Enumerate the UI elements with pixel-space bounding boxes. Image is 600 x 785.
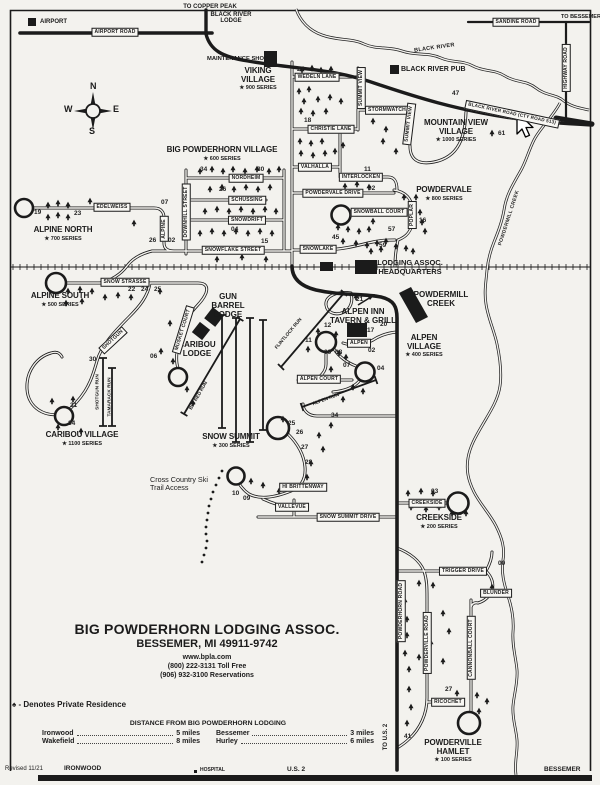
village-big-powderhorn: BIG POWDERHORN VILLAGE ★ 600 SERIES — [160, 146, 284, 162]
village-powdervale: POWDERVALE ★ 800 SERIES — [404, 186, 484, 202]
lot-number: 18 — [304, 117, 311, 124]
dotted-leader — [241, 743, 347, 744]
legend-private-residence: ♠ - Denotes Private Residence — [12, 701, 126, 710]
compass-icon — [74, 92, 112, 130]
lot-number: 07 — [161, 199, 168, 206]
road-snow-summit-drive: SNOW SUMMIT DRIVE — [317, 513, 380, 522]
lot-number: 02 — [368, 347, 375, 354]
village-snow-summit: SNOW SUMMIT ★ 300 SERIES — [185, 433, 277, 449]
distance-place: Hurley — [216, 738, 238, 745]
lot-number: 11 — [305, 337, 312, 344]
village-caribou: CARIBOU VILLAGE ★ 1100 SERIES — [36, 431, 128, 447]
hospital-label: HOSPITAL — [200, 768, 225, 773]
compass-s: S — [89, 127, 95, 137]
tree-icon: ♠ — [12, 700, 16, 709]
lot-number: 19 — [34, 209, 41, 216]
distance-row: Hurley 6 miles — [216, 738, 374, 745]
village-creekside: CREEKSIDE ★ 200 SERIES — [404, 514, 474, 530]
road-snowlake: SNOWLAKE — [300, 245, 337, 254]
black-river-lodge-label: BLACK RIVER LODGE — [207, 12, 255, 25]
hospital-icon — [194, 770, 197, 773]
road-sandine: SANDINE ROAD — [492, 18, 539, 27]
village-alpine-south: ALPINE SOUTH ★ 500 SERIES — [20, 292, 100, 308]
legend-text: - Denotes Private Residence — [18, 700, 126, 709]
distance-miles: 5 miles — [176, 730, 200, 737]
lot-number: 22 — [128, 286, 135, 293]
lot-number: 34 — [68, 420, 75, 427]
distance-place: Wakefield — [42, 738, 74, 745]
xc-trail-access-label: Cross Country Ski Trail Access — [150, 476, 214, 492]
road-vallevue: VALLEVUE — [275, 503, 309, 512]
lot-number: 12 — [324, 322, 331, 329]
lot-number: 27 — [445, 686, 452, 693]
road-powderhorn-road: POWDERHORN ROAD — [397, 580, 406, 642]
village-mountain-view: MOUNTAIN VIEW VILLAGE ★ 1000 SERIES — [420, 119, 492, 143]
distance-row: Bessemer 3 miles — [216, 730, 374, 737]
distance-row: Wakefield 8 miles — [42, 738, 200, 745]
to-copper-peak-label: TO COPPER PEAK — [183, 4, 237, 10]
compass-w: W — [64, 105, 73, 115]
run-shotgun: SHOTGUN RUN — [96, 374, 101, 410]
lot-number: 10 — [232, 490, 239, 497]
org-title: BIG POWDERHORN LODGING ASSOC. — [74, 622, 339, 637]
lot-number: 02 — [368, 185, 375, 192]
railroad — [11, 264, 590, 270]
black-river-pub-label: BLACK RIVER PUB — [401, 66, 466, 73]
road-snowball-court: SNOWBALL COURT — [351, 208, 408, 217]
lot-number: 34 — [200, 166, 207, 173]
run-tamarack: TAMARACK RUN — [108, 377, 113, 416]
lot-number: 00 — [498, 560, 505, 567]
lot-number: 25 — [288, 420, 295, 427]
bessemer-label: BESSEMER — [544, 766, 580, 773]
lot-number: 16 — [419, 217, 426, 224]
lot-number: 09 — [243, 495, 250, 502]
us2-label: U.S. 2 — [287, 766, 305, 773]
org-address: BESSEMER, MI 49911-9742 — [136, 639, 277, 651]
lot-number: 30 — [257, 166, 264, 173]
distance-table: Ironwood 5 miles Bessemer 3 miles Wakefi… — [42, 730, 374, 745]
road-poplar: POPLAR — [408, 201, 417, 229]
road-interlocken: INTERLOCKEN — [339, 173, 383, 182]
lot-number: 23 — [74, 210, 81, 217]
lot-number: 04 — [377, 365, 384, 372]
distance-place: Bessemer — [216, 730, 249, 737]
road-blunder: BLUNDER — [480, 589, 512, 598]
village-viking: VIKING VILLAGE ★ 900 SERIES — [232, 67, 284, 91]
org-phone-reservations: (906) 932-3100 Reservations — [160, 672, 254, 680]
org-phone-tollfree: (800) 222-3131 Toll Free — [168, 663, 246, 671]
powdermill-creek-poi-label: POWDERMILL CREEK — [412, 290, 470, 308]
lot-number: 27 — [301, 444, 308, 451]
distance-table-title: DISTANCE FROM BIG POWDERHORN LODGING — [130, 720, 286, 727]
lot-number: 09 — [324, 349, 331, 356]
lot-number: 15 — [261, 238, 268, 245]
lot-number: 20 — [380, 321, 387, 328]
org-website: www.bpla.com — [183, 654, 232, 662]
lot-number: 06 — [150, 353, 157, 360]
road-summit-view-a: SUMMIT VIEW — [357, 67, 366, 109]
road-alpen: ALPEN — [347, 339, 371, 348]
road-schussing: SCHUSSING — [228, 196, 266, 205]
lot-number: 41 — [404, 733, 411, 740]
road-airport-road: AIRPORT ROAD — [91, 28, 138, 37]
lot-number: 03 — [431, 488, 438, 495]
to-us2-label: TO U.S. 2 — [383, 724, 389, 751]
dotted-leader — [252, 735, 347, 736]
road-trigger-drive: TRIGGER DRIVE — [439, 567, 487, 576]
road-stormwatch: STORMWATCH — [365, 106, 409, 115]
black-river — [296, 9, 589, 110]
dotted-leader — [77, 743, 173, 744]
road-ricochet: RICOCHET — [431, 698, 465, 707]
road-alpine: ALPINE — [160, 216, 169, 242]
lot-number: 02 — [168, 237, 175, 244]
lot-number: 26 — [149, 237, 156, 244]
distance-miles: 8 miles — [176, 738, 200, 745]
highways — [20, 10, 592, 770]
lot-number: 24 — [141, 286, 148, 293]
compass-n: N — [90, 82, 97, 92]
culdesacs — [15, 199, 480, 734]
revised-date: Revised 11/21 — [5, 766, 43, 772]
lot-number: 04 — [231, 226, 238, 233]
lot-number: 25 — [154, 286, 161, 293]
lot-number: 57 — [388, 226, 395, 233]
lot-number: 31 — [70, 402, 77, 409]
lodging-hq-label: LODGING ASSOC. HEADQUARTERS — [368, 258, 452, 276]
lot-number: 59 — [379, 242, 386, 249]
lot-number: 47 — [452, 90, 459, 97]
road-snowdrift: SNOWDRIFT — [228, 216, 266, 225]
lot-number: 26 — [219, 186, 226, 193]
lot-number: 61 — [498, 130, 505, 137]
road-downhill-street: DOWNHILL STREET — [182, 184, 191, 241]
lot-number: 27 — [297, 66, 304, 73]
village-powderville: POWDERVILLE HAMLET ★ 100 SERIES — [421, 739, 485, 763]
lot-number: 11 — [364, 166, 371, 173]
road-cannonball-court: CANNONBALL COURT — [467, 616, 476, 680]
road-nordheim: NORDHEIM — [229, 174, 264, 183]
lot-number: 45 — [332, 234, 339, 241]
village-alpine-north: ALPINE NORTH ★ 700 SERIES — [23, 226, 103, 242]
airport-label: AIRPORT — [40, 19, 67, 25]
road-edelweiss: EDELWEISS — [94, 203, 131, 212]
dotted-leader — [77, 735, 174, 736]
road-highway-road: HIGHWAY ROAD — [562, 44, 571, 92]
map-canvas: AIRPORT TO COPPER PEAK BLACK RIVER LODGE… — [0, 0, 600, 785]
road-powdervale-drive: POWDERVALE DRIVE — [302, 189, 363, 198]
distance-miles: 6 miles — [350, 738, 374, 745]
distance-row: Ironwood 5 miles — [42, 730, 200, 737]
road-wedeln-lane: WEDELN LANE — [295, 73, 340, 82]
road-snow-strasse: SNOW STRASSE — [101, 278, 150, 287]
road-hi-brittenway: HI BRITTENWAY — [279, 483, 327, 492]
lot-number: 30 — [89, 356, 96, 363]
road-snowflake-street: SNOWFLAKE STREET — [202, 246, 265, 255]
gun-barrel-lodge-label: GUN BARREL LODGE — [202, 292, 254, 319]
distance-miles: 3 miles — [350, 730, 374, 737]
village-alpen: ALPEN VILLAGE ★ 400 SERIES — [404, 334, 444, 358]
lot-number: 17 — [367, 327, 374, 334]
ironwood-label: IRONWOOD — [64, 765, 101, 772]
to-bessemer-label: TO BESSEMER — [561, 15, 600, 21]
road-valhalla: VALHALLA — [298, 163, 332, 172]
road-creekside: CREEKSIDE — [409, 499, 446, 508]
lot-number: 34 — [331, 412, 338, 419]
maintenance-shop-label: MAINTENANCE SHOP — [207, 56, 268, 62]
lot-number: 08 — [335, 349, 342, 356]
compass-e: E — [113, 105, 119, 115]
lot-number: 21 — [356, 296, 363, 303]
lot-number: 07 — [343, 362, 350, 369]
road-christie-lane: CHRISTIE LANE — [308, 125, 355, 134]
road-powderville-road: POWDERVILLE ROAD — [423, 612, 432, 674]
distance-place: Ironwood — [42, 730, 74, 737]
road-alpen-court: ALPEN COURT — [297, 375, 341, 384]
lot-number: 26 — [296, 429, 303, 436]
lot-number: 28 — [305, 459, 312, 466]
